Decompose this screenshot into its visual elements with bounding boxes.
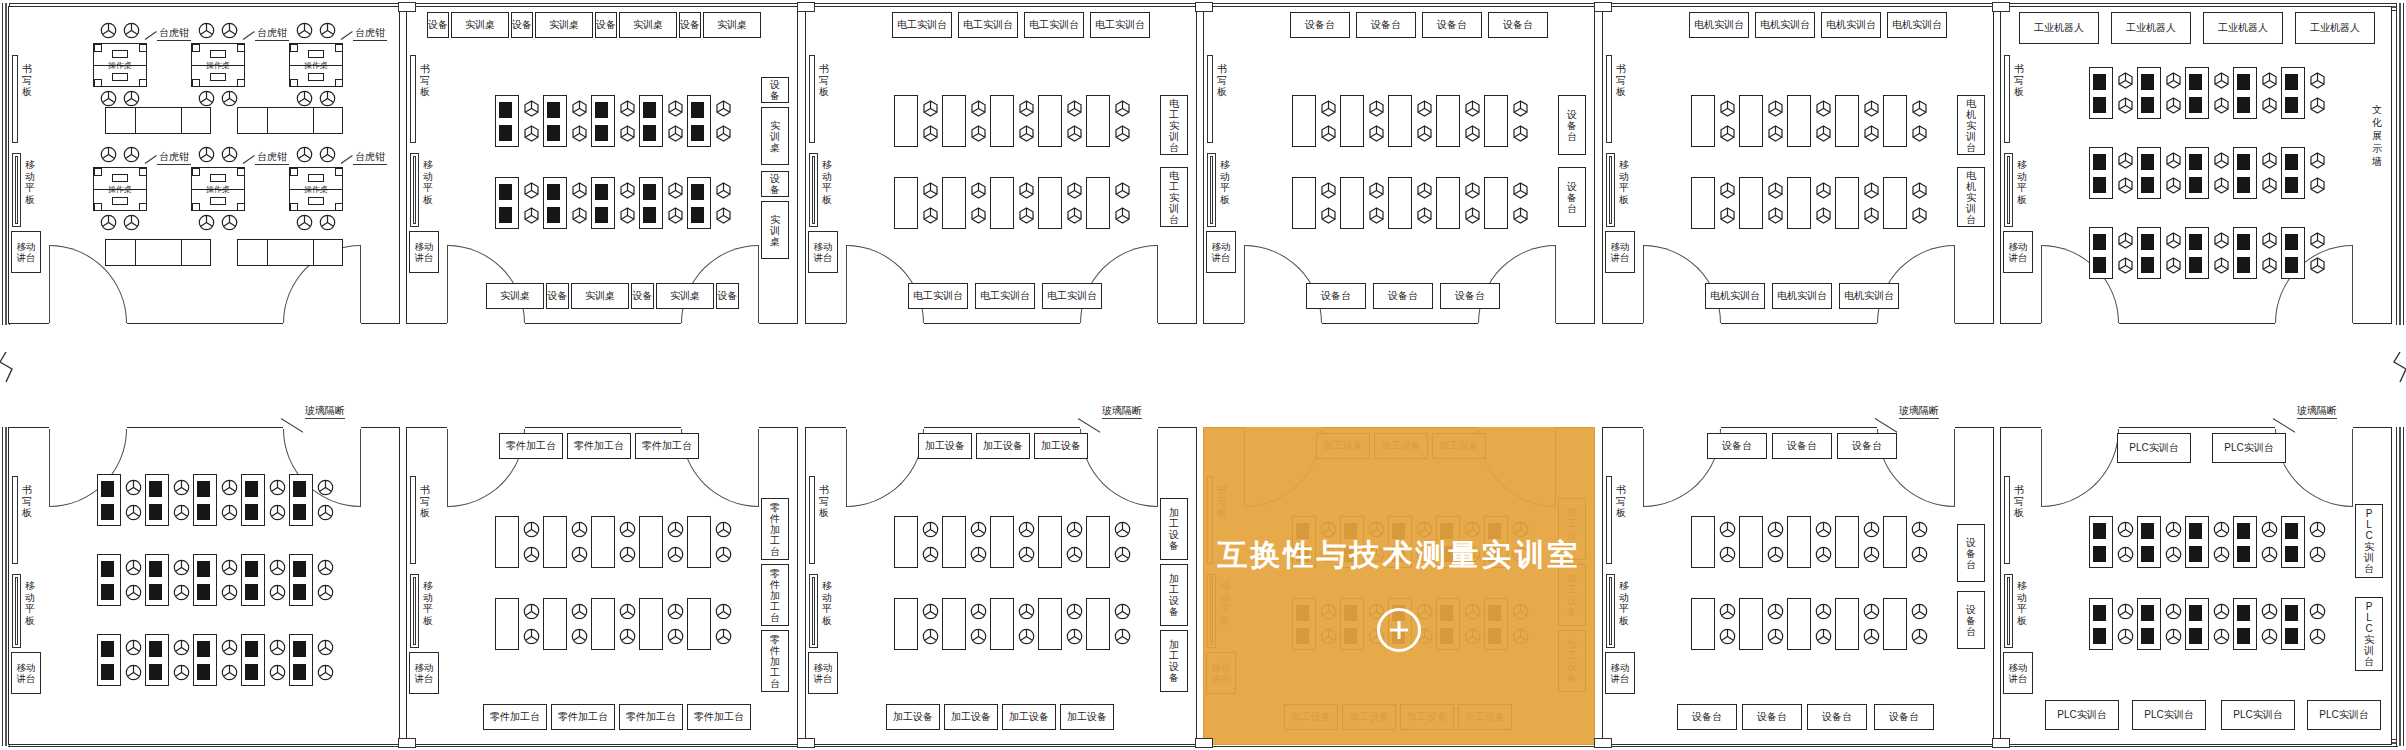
chair-cube-icon	[1464, 100, 1481, 117]
work-table	[591, 598, 615, 650]
mobile-podium: 移动 讲台	[1605, 231, 1635, 273]
equipment-box: PLC实训台	[2132, 700, 2206, 730]
chair-cube-icon	[667, 100, 684, 117]
chair-fan-icon	[1018, 603, 1035, 620]
equipment-box: PLC实训台	[2307, 700, 2381, 730]
writing-board-label: 书 写 板	[21, 484, 33, 519]
chair-fan-icon	[123, 22, 140, 39]
chair-fan-icon	[922, 603, 939, 620]
computer-desk	[145, 554, 169, 606]
vise-workbench: 操作桌	[289, 43, 343, 87]
chair-cube-icon	[667, 125, 684, 142]
computer-desk	[2137, 147, 2161, 199]
monitor-icon	[499, 102, 512, 118]
chair-cube-icon	[1719, 100, 1736, 117]
bench-slot	[308, 73, 324, 81]
equipment-box: 设 备	[761, 77, 789, 103]
bench-label: 操作桌	[290, 184, 342, 195]
equipment-box: 设备	[427, 12, 449, 38]
chair-cube-icon	[2213, 177, 2230, 194]
chair-fan-icon	[667, 546, 684, 563]
equipment-box: PLC实训台	[2045, 700, 2119, 730]
monitor-icon	[2141, 605, 2154, 621]
bench-corner	[290, 44, 298, 52]
chair-fan-icon	[1114, 546, 1131, 563]
work-table	[1086, 598, 1110, 650]
chair-fan-icon	[173, 559, 190, 576]
chair-cube-icon	[2213, 232, 2230, 249]
chair-fan-icon	[922, 521, 939, 538]
chair-cube-icon	[667, 182, 684, 199]
room-fitter-vise-room[interactable]: 书 写 板移 动 平 板移动 讲台操作桌台虎钳操作桌台虎钳操作桌台虎钳操作桌台虎…	[8, 6, 400, 324]
chair-cube-icon	[1320, 100, 1337, 117]
chair-cube-icon	[1066, 125, 1083, 142]
chair-cube-icon	[2261, 232, 2278, 249]
equipment-box: P L C 实 训 台	[2355, 597, 2383, 671]
equipment-box: 零件加工台	[567, 433, 631, 459]
mobile-panel-label: 移 动 平 板	[821, 580, 833, 626]
mobile-panel-label: 移 动 平 板	[422, 580, 434, 626]
mobile-panel	[809, 574, 818, 648]
chair-cube-icon	[2165, 232, 2182, 249]
mobile-panel-inner	[2007, 156, 2010, 224]
equipment-box: 零 件 加 工 台	[761, 564, 789, 626]
mobile-podium: 移动 讲台	[409, 231, 439, 273]
monitor-icon	[245, 481, 258, 497]
chair-cube-icon	[970, 125, 987, 142]
chair-cube-icon	[970, 100, 987, 117]
monitor-icon	[547, 102, 560, 118]
monitor-icon	[2141, 234, 2154, 250]
computer-desk	[639, 177, 663, 229]
equipment-box: PLC实训台	[2221, 700, 2295, 730]
monitor-icon	[101, 504, 114, 520]
equipment-box-label: 零 件 加 工 台	[770, 568, 780, 623]
chair-fan-icon	[1767, 628, 1784, 645]
work-table	[1739, 598, 1763, 650]
monitor-icon	[2189, 97, 2202, 113]
equipment-box: PLC实训台	[2212, 433, 2286, 463]
monitor-icon	[547, 125, 560, 141]
storage-cabinet	[105, 239, 211, 266]
equipment-box: 实 训 桌	[761, 201, 789, 259]
work-table	[687, 598, 711, 650]
equipment-box: 加工设备	[918, 433, 972, 459]
monitor-icon	[2093, 523, 2106, 539]
wall-pillar	[1992, 738, 2010, 748]
chair-fan-icon	[1767, 521, 1784, 538]
work-table	[495, 516, 519, 568]
writing-board	[12, 476, 18, 564]
chair-cube-icon	[1320, 182, 1337, 199]
chair-cube-icon	[922, 100, 939, 117]
equipment-box: 加 工 设 备	[1160, 498, 1188, 560]
work-table	[543, 598, 567, 650]
chair-cube-icon	[1320, 207, 1337, 224]
work-table	[639, 516, 663, 568]
work-table	[1739, 95, 1763, 147]
chair-fan-icon	[1018, 521, 1035, 538]
chair-cube-icon	[1018, 207, 1035, 224]
chair-fan-icon	[523, 603, 540, 620]
chair-fan-icon	[571, 603, 588, 620]
computer-desk	[2185, 147, 2209, 199]
work-table	[1436, 177, 1460, 229]
chair-cube-icon	[2309, 177, 2326, 194]
equipment-box: 设备	[631, 283, 654, 309]
bench-slot	[308, 50, 324, 58]
monitor-icon	[149, 561, 162, 577]
chair-fan-icon	[571, 546, 588, 563]
chair-cube-icon	[1815, 100, 1832, 117]
mobile-panel-label: 移 动 平 板	[422, 159, 434, 205]
monitor-icon	[499, 125, 512, 141]
wall-pillar	[1594, 2, 1612, 12]
chair-cube-icon	[1719, 182, 1736, 199]
chair-cube-icon	[1815, 207, 1832, 224]
chair-fan-icon	[221, 146, 238, 163]
chair-fan-icon	[269, 559, 286, 576]
chair-cube-icon	[1066, 182, 1083, 199]
monitor-icon	[2285, 546, 2298, 562]
equipment-box: 设备台	[1742, 704, 1802, 730]
highlighted-room-overlay[interactable]: 互换性与技术测量实训室	[1203, 427, 1595, 745]
chair-cube-icon	[1416, 100, 1433, 117]
computer-desk	[543, 177, 567, 229]
work-table	[1883, 598, 1907, 650]
chair-fan-icon	[2117, 628, 2134, 645]
computer-desk	[2089, 147, 2113, 199]
monitor-icon	[2189, 523, 2202, 539]
chair-cube-icon	[1416, 125, 1433, 142]
room-equipment-table-room-bottom[interactable]: 书 写 板移 动 平 板移动 讲台设备台设备台设备台设备台设备台设备台设备台设 …	[1602, 427, 1994, 745]
work-table	[942, 95, 966, 147]
mobile-panel-inner	[15, 156, 18, 224]
equipment-box: 零件加工台	[635, 433, 699, 459]
writing-board-label: 书 写 板	[1216, 63, 1228, 98]
chair-cube-icon	[2165, 97, 2182, 114]
computer-desk	[2137, 516, 2161, 568]
monitor-icon	[149, 584, 162, 600]
monitor-icon	[245, 584, 258, 600]
plus-circle-icon[interactable]	[1377, 608, 1421, 652]
chair-fan-icon	[922, 628, 939, 645]
writing-board-label: 书 写 板	[818, 484, 830, 519]
chair-fan-icon	[619, 628, 636, 645]
wall-pillar	[1195, 738, 1213, 748]
chair-fan-icon	[221, 639, 238, 656]
chair-fan-icon	[2309, 546, 2326, 563]
equipment-box: 工业机器人	[2019, 12, 2099, 44]
chair-cube-icon	[2261, 177, 2278, 194]
chair-fan-icon	[317, 479, 334, 496]
computer-desk	[2185, 227, 2209, 279]
work-table	[1835, 598, 1859, 650]
monitor-icon	[547, 184, 560, 200]
computer-desk	[2233, 147, 2257, 199]
writing-board	[2004, 476, 2010, 564]
chair-fan-icon	[2117, 603, 2134, 620]
chair-fan-icon	[198, 146, 215, 163]
room-plc-training-room[interactable]: 书 写 板移 动 平 板移动 讲台PLC实训台PLC实训台PLC实训台PLC实训…	[2000, 427, 2392, 745]
monitor-icon	[2285, 234, 2298, 250]
writing-board-label: 书 写 板	[1615, 63, 1627, 98]
chair-cube-icon	[2165, 177, 2182, 194]
mobile-panel	[2004, 574, 2013, 648]
monitor-icon	[2093, 257, 2106, 273]
mobile-panel-inner	[413, 577, 416, 645]
chair-fan-icon	[2213, 521, 2230, 538]
chair-fan-icon	[2261, 546, 2278, 563]
equipment-box-label: 电 机 实 训 台	[1966, 170, 1976, 225]
chair-cube-icon	[2261, 257, 2278, 274]
chair-fan-icon	[198, 90, 215, 107]
mobile-podium: 移动 讲台	[1605, 652, 1635, 694]
chair-cube-icon	[2117, 177, 2134, 194]
wall-pillar	[797, 2, 815, 12]
equipment-box: 加工设备	[1002, 704, 1056, 730]
work-table	[687, 516, 711, 568]
monitor-icon	[2189, 177, 2202, 193]
bench-corner	[290, 79, 298, 87]
chair-fan-icon	[619, 546, 636, 563]
chair-fan-icon	[125, 584, 142, 601]
chair-fan-icon	[1911, 628, 1928, 645]
equipment-box: 电工实训台	[1024, 12, 1084, 38]
chair-cube-icon	[2213, 152, 2230, 169]
work-table	[1038, 95, 1062, 147]
equipment-box: 电工实训台	[1090, 12, 1150, 38]
monitor-icon	[2285, 605, 2298, 621]
chair-fan-icon	[221, 214, 238, 231]
chair-cube-icon	[2213, 72, 2230, 89]
bench-corner	[290, 203, 298, 211]
monitor-icon	[2141, 628, 2154, 644]
chair-fan-icon	[319, 22, 336, 39]
chair-fan-icon	[221, 584, 238, 601]
monitor-icon	[245, 641, 258, 657]
chair-fan-icon	[2165, 521, 2182, 538]
chair-fan-icon	[2309, 628, 2326, 645]
monitor-icon	[595, 184, 608, 200]
room-training-desk-room[interactable]: 书 写 板移 动 平 板移动 讲台设备实训桌设备实训桌设备实训桌设备实训桌实训桌…	[406, 6, 798, 324]
monitor-icon	[149, 481, 162, 497]
exterior-wall-right-bottom	[2396, 427, 2404, 746]
computer-desk	[2089, 227, 2113, 279]
vise-callout-label: 台虎钳	[255, 26, 289, 41]
monitor-icon	[2285, 628, 2298, 644]
chair-fan-icon	[523, 521, 540, 538]
monitor-icon	[643, 125, 656, 141]
room-parts-machining-room[interactable]: 书 写 板移 动 平 板移动 讲台零件加工台零件加工台零件加工台零件加工台零件加…	[406, 427, 798, 745]
chair-fan-icon	[317, 559, 334, 576]
computer-desk	[2233, 516, 2257, 568]
work-table	[1484, 177, 1508, 229]
room-electrician-training-room[interactable]: 书 写 板移 动 平 板移动 讲台电工实训台电工实训台电工实训台电工实训台电工实…	[805, 6, 1197, 324]
equipment-box: 设备台	[1440, 283, 1500, 309]
mobile-panel	[2004, 153, 2013, 227]
equipment-box: 电机实训台	[1755, 12, 1815, 38]
equipment-box: P L C 实 训 台	[2355, 504, 2383, 578]
work-table	[1739, 516, 1763, 568]
equipment-box: 电机实训台	[1772, 283, 1832, 309]
chair-cube-icon	[2117, 97, 2134, 114]
chair-cube-icon	[1767, 182, 1784, 199]
writing-board	[809, 476, 815, 564]
chair-fan-icon	[296, 146, 313, 163]
monitor-icon	[197, 584, 210, 600]
monitor-icon	[197, 641, 210, 657]
work-table	[942, 598, 966, 650]
chair-fan-icon	[970, 521, 987, 538]
bench-corner	[139, 168, 147, 176]
chair-cube-icon	[2309, 72, 2326, 89]
chair-cube-icon	[922, 207, 939, 224]
chair-fan-icon	[173, 504, 190, 521]
writing-board	[410, 55, 416, 143]
wall-pillar	[1594, 738, 1612, 748]
chair-cube-icon	[1066, 100, 1083, 117]
work-table	[1691, 598, 1715, 650]
computer-desk	[2281, 147, 2305, 199]
room-computer-training-room[interactable]: 书 写 板移 动 平 板移动 讲台玻璃隔断	[8, 427, 400, 745]
monitor-icon	[2237, 97, 2250, 113]
equipment-box: 零件加工台	[687, 704, 751, 730]
equipment-box: 实训桌	[656, 283, 714, 309]
equipment-box: 实训桌	[571, 283, 629, 309]
chair-fan-icon	[1066, 546, 1083, 563]
equipment-box: 加 工 设 备	[1160, 630, 1188, 692]
work-table	[990, 95, 1014, 147]
work-table	[1835, 95, 1859, 147]
room-machining-equipment-room[interactable]: 书 写 板移 动 平 板移动 讲台加工设备加工设备加工设备加工设备加工设备加工设…	[805, 427, 1197, 745]
computer-desk	[2185, 67, 2209, 119]
chair-cube-icon	[523, 125, 540, 142]
chair-fan-icon	[173, 479, 190, 496]
work-table	[990, 598, 1014, 650]
equipment-box-label: 零 件 加 工 台	[770, 502, 780, 557]
monitor-icon	[2141, 257, 2154, 273]
monitor-icon	[2141, 523, 2154, 539]
chair-fan-icon	[317, 664, 334, 681]
monitor-icon	[245, 664, 258, 680]
monitor-icon	[2237, 628, 2250, 644]
chair-fan-icon	[1018, 628, 1035, 645]
chair-cube-icon	[1863, 125, 1880, 142]
chair-fan-icon	[100, 90, 117, 107]
computer-desk	[2233, 227, 2257, 279]
chair-fan-icon	[221, 559, 238, 576]
bench-corner	[94, 203, 102, 211]
work-table	[1340, 95, 1364, 147]
monitor-icon	[2189, 154, 2202, 170]
glass-partition-label: 玻璃隔断	[1102, 404, 1142, 419]
computer-desk	[193, 634, 217, 686]
chair-fan-icon	[715, 546, 732, 563]
chair-fan-icon	[571, 628, 588, 645]
equipment-box: 电 机 实 训 台	[1957, 95, 1985, 155]
chair-cube-icon	[1464, 125, 1481, 142]
monitor-icon	[197, 561, 210, 577]
computer-desk	[2281, 598, 2305, 650]
bench-slot	[112, 174, 128, 182]
equipment-box: 设备台	[1306, 283, 1366, 309]
vise-workbench: 操作桌	[191, 167, 245, 211]
mobile-panel-label: 移 动 平 板	[2016, 159, 2028, 205]
monitor-icon	[101, 664, 114, 680]
chair-cube-icon	[1114, 100, 1131, 117]
mobile-panel-inner	[1609, 156, 1612, 224]
writing-board	[2004, 55, 2010, 143]
chair-cube-icon	[619, 125, 636, 142]
monitor-icon	[293, 584, 306, 600]
room-motor-training-room[interactable]: 书 写 板移 动 平 板移动 讲台电机实训台电机实训台电机实训台电机实训台电机实…	[1602, 6, 1994, 324]
vise-callout-leader	[243, 155, 255, 164]
mobile-panel	[1606, 574, 1615, 648]
equipment-box: 设备	[511, 12, 533, 38]
equipment-box-label: 实 训 桌	[770, 120, 780, 153]
chair-fan-icon	[296, 22, 313, 39]
chair-fan-icon	[2213, 628, 2230, 645]
computer-desk	[2137, 598, 2161, 650]
equipment-box: 电机实训台	[1689, 12, 1749, 38]
equipment-box: 设 备 台	[1957, 524, 1985, 582]
monitor-icon	[101, 641, 114, 657]
monitor-icon	[2141, 97, 2154, 113]
equipment-box: 设备台	[1373, 283, 1433, 309]
monitor-icon	[2237, 257, 2250, 273]
writing-board-label: 书 写 板	[818, 63, 830, 98]
chair-cube-icon	[1719, 125, 1736, 142]
mobile-panel-label: 移 动 平 板	[1618, 580, 1630, 626]
monitor-icon	[245, 561, 258, 577]
monitor-icon	[2237, 546, 2250, 562]
chair-fan-icon	[1815, 628, 1832, 645]
chair-cube-icon	[2309, 97, 2326, 114]
vise-callout-label: 台虎钳	[157, 150, 191, 165]
door-swing-arc	[1080, 429, 1158, 507]
bench-corner	[192, 203, 200, 211]
chair-cube-icon	[1815, 125, 1832, 142]
monitor-icon	[2093, 234, 2106, 250]
room-equipment-table-room-top[interactable]: 书 写 板移 动 平 板移动 讲台设备台设备台设备台设备台设备台设备台设备台设 …	[1203, 6, 1595, 324]
writing-board	[1606, 476, 1612, 564]
chair-fan-icon	[715, 521, 732, 538]
glass-partition-label: 玻璃隔断	[2297, 404, 2337, 419]
mobile-panel-label: 移 动 平 板	[24, 580, 36, 626]
monitor-icon	[2141, 177, 2154, 193]
equipment-box-label: 设 备 台	[1567, 109, 1577, 142]
monitor-icon	[149, 664, 162, 680]
chair-cube-icon	[1863, 100, 1880, 117]
equipment-box: 实训桌	[451, 12, 509, 38]
wall-pillar	[1992, 2, 2010, 12]
monitor-icon	[499, 184, 512, 200]
room-industrial-robot-room[interactable]: 书 写 板移 动 平 板移动 讲台工业机器人工业机器人工业机器人工业机器人文 化…	[2000, 6, 2392, 324]
chair-fan-icon	[269, 664, 286, 681]
bench-slot	[112, 73, 128, 81]
writing-board	[809, 55, 815, 143]
equipment-box-label: 设 备	[770, 79, 780, 101]
chair-cube-icon	[1767, 100, 1784, 117]
equipment-box: 设 备 台	[1558, 95, 1586, 155]
chair-cube-icon	[2261, 97, 2278, 114]
chair-fan-icon	[125, 639, 142, 656]
vise-workbench: 操作桌	[93, 43, 147, 87]
chair-fan-icon	[1018, 546, 1035, 563]
chair-cube-icon	[1512, 100, 1529, 117]
chair-cube-icon	[571, 100, 588, 117]
